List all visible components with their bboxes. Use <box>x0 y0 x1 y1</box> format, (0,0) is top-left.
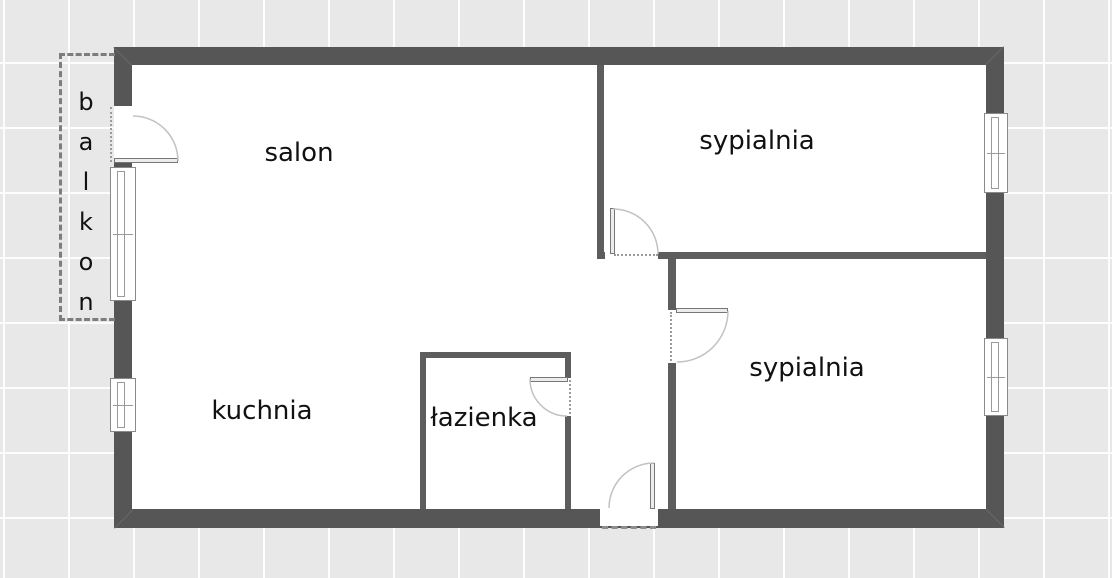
wall-hall-bedroom-divider <box>668 252 676 509</box>
room-label-bedroom-top: sypialnia <box>699 126 814 156</box>
room-label-balcony: balkon <box>74 88 98 328</box>
window-sash <box>113 405 133 406</box>
window-sash <box>987 377 1005 378</box>
room-label-salon: salon <box>264 138 333 168</box>
wall-bathroom-top <box>420 352 571 358</box>
bedroom-top-door-leaf <box>610 208 615 254</box>
room-label-bathroom: łazienka <box>430 403 537 433</box>
bedroom-top-door-threshold-dots <box>614 254 658 256</box>
bedroom-top-window <box>984 113 1008 193</box>
room-label-kitchen: kuchnia <box>211 396 312 426</box>
wall-bathroom-right <box>565 352 571 509</box>
bathroom-door-leaf <box>530 377 568 382</box>
entrance-door-leaf <box>650 463 655 509</box>
room-label-bedroom-bottom: sypialnia <box>749 353 864 383</box>
apartment-floor <box>132 65 986 509</box>
bedroom-bottom-window <box>984 338 1008 416</box>
wall-salon-bedroom-divider <box>597 65 604 259</box>
bedroom-bottom-door-threshold-dots <box>670 312 672 361</box>
window-sash <box>987 153 1005 154</box>
bathroom-door-threshold-dots <box>569 380 571 414</box>
wall-bathroom-left <box>420 352 426 509</box>
entrance-door-opening <box>600 509 658 526</box>
bedroom-bottom-door-leaf <box>676 308 728 313</box>
kitchen-window <box>110 378 136 432</box>
balcony-door-leaf <box>114 158 178 163</box>
entrance-door-threshold-dashes <box>602 526 656 529</box>
balcony-door-opening <box>114 106 132 163</box>
window-sash <box>113 234 133 235</box>
floor-plan-canvas: balkon salon sypialnia sypialnia kuchnia… <box>0 0 1112 578</box>
